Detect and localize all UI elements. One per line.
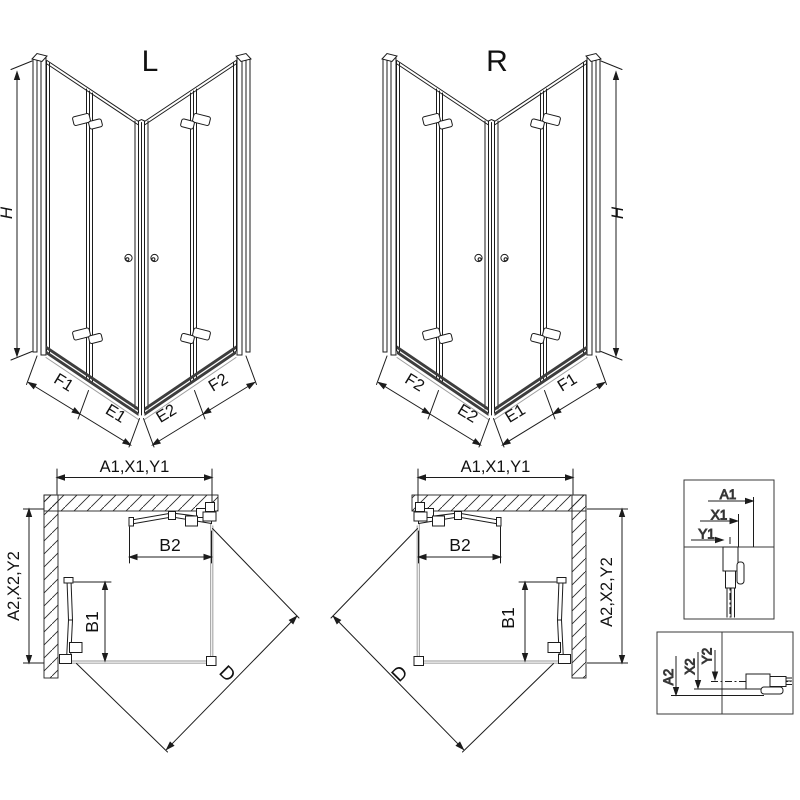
dim-label-h-left: H [0, 206, 16, 219]
dim-label-d-right: D [388, 662, 413, 687]
dim-label-e1-right: E1 [502, 401, 529, 427]
detail-label-y1: Y1 [698, 527, 715, 542]
dim-label-f2-right: F2 [402, 370, 428, 395]
diagram-svg: L H F1 E1 E2 F2 R H F2 E2 E1 F1 A1,X1,Y1… [0, 0, 800, 800]
detail-box-depth: A2 X2 Y2 [657, 632, 793, 714]
wall-top [412, 495, 586, 511]
detail-label-x1: X1 [711, 508, 728, 523]
detail-label-x2: X2 [683, 658, 698, 675]
plan-linework-right [331, 469, 573, 752]
detail-label-a1: A1 [720, 487, 737, 502]
dim-label-b2-right: B2 [449, 535, 470, 555]
wall-right [572, 495, 586, 678]
depth-dimension-left [23, 509, 44, 663]
dim-label-h-right: H [608, 206, 627, 219]
detail-label-y2: Y2 [700, 648, 715, 665]
dim-label-a1x1y1-right: A1,X1,Y1 [461, 458, 531, 476]
dim-label-d-left: D [215, 662, 240, 687]
dim-label-b1-right: B1 [498, 607, 518, 628]
shower-enclosure-dimensions-diagram: L H F1 E1 E2 F2 R H F2 E2 E1 F1 A1,X1,Y1… [0, 0, 800, 800]
dim-label-a2x2y2-right: A2,X2,Y2 [598, 557, 616, 627]
detail-label-a2: A2 [661, 669, 676, 686]
dim-label-b2-left: B2 [159, 535, 180, 555]
dim-label-b1-left: B1 [82, 611, 102, 632]
figure-plan-left: A1,X1,Y1 A2,X2,Y2 B2 B1 D [5, 458, 299, 752]
dim-label-a1x1y1-left: A1,X1,Y1 [100, 458, 170, 476]
figure-plan-right: A1,X1,Y1 A2,X2,Y2 B2 B1 D [331, 458, 628, 752]
detail-box-width: A1 X1 Y1 [684, 480, 774, 619]
variant-title-right: R [486, 45, 508, 78]
dim-label-f1-right: F1 [554, 370, 580, 395]
figure-perspective-left: L H F1 E1 E2 F2 [0, 45, 257, 447]
wall-left [44, 495, 58, 678]
variant-title-left: L [142, 45, 159, 78]
figure-perspective-right: R H F2 E2 E1 F1 [377, 45, 628, 447]
dim-label-f2: F2 [205, 370, 231, 395]
plan-linework-left [57, 469, 299, 752]
dim-label-a2x2y2-left: A2,X2,Y2 [5, 551, 23, 621]
wall-top [44, 495, 218, 511]
dim-label-f1: F1 [51, 370, 77, 395]
